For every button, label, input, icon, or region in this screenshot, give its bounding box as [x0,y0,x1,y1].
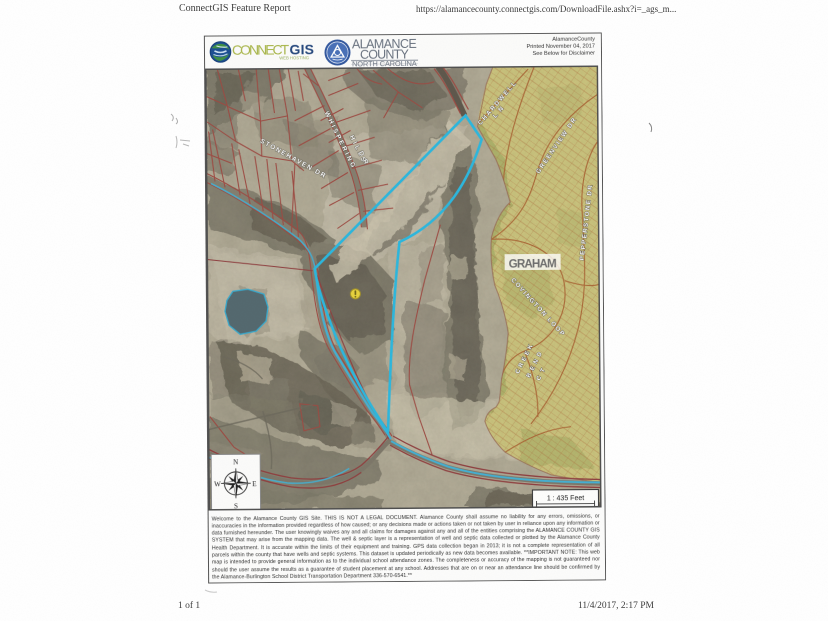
svg-text:GRAHAM: GRAHAM [509,257,557,270]
svg-text:WEB HOSTING: WEB HOSTING [279,55,309,60]
svg-text:W: W [214,480,221,488]
svg-text:E: E [252,480,256,488]
svg-text:N: N [233,458,238,466]
svg-text:1 : 435 Feet: 1 : 435 Feet [547,495,584,502]
